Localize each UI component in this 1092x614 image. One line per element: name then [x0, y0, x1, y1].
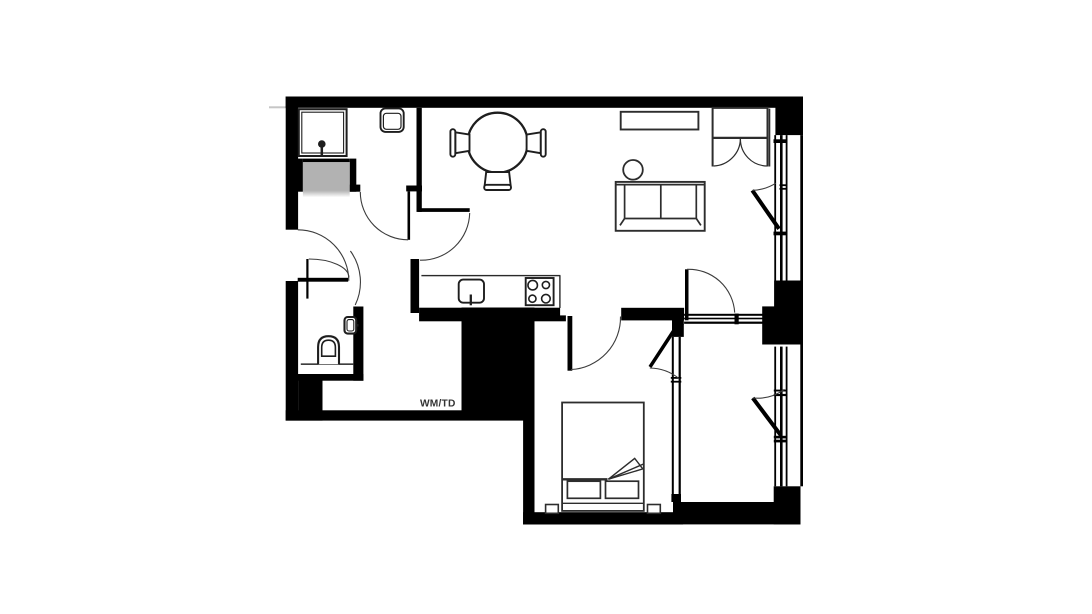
svg-text:WM/TD: WM/TD	[420, 398, 456, 409]
